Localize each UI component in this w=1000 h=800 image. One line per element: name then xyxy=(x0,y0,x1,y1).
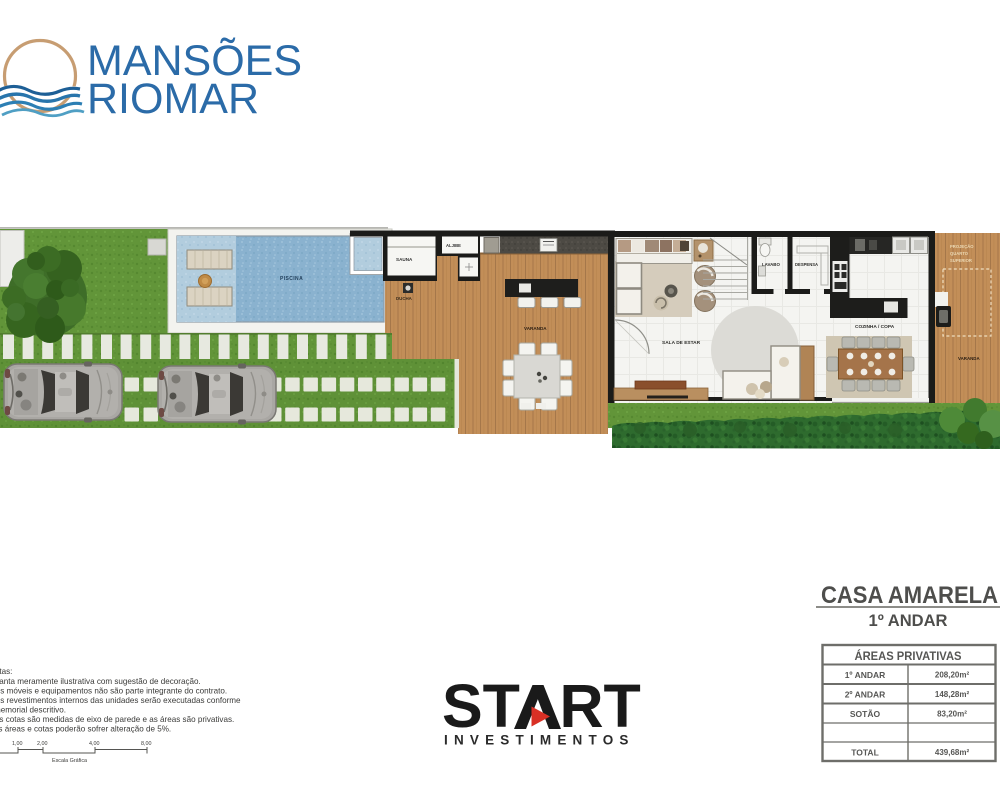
svg-text:1,00: 1,00 xyxy=(12,741,23,747)
svg-text:PISCINA: PISCINA xyxy=(280,276,303,282)
svg-text:SOTÃO: SOTÃO xyxy=(850,709,881,719)
svg-text:As áreas e cotas poderão sofre: As áreas e cotas poderão sofrer alteraçã… xyxy=(0,725,171,734)
svg-text:208,20m²: 208,20m² xyxy=(935,671,970,680)
svg-text:Os revestimentos internos das: Os revestimentos internos das unidades s… xyxy=(0,696,241,705)
svg-text:As cotas são medidas de eixo d: As cotas são medidas de eixo de parede e… xyxy=(0,715,234,724)
svg-text:83,20m²: 83,20m² xyxy=(937,710,967,719)
svg-text:Planta meramente ilustrativa c: Planta meramente ilustrativa com sugestã… xyxy=(0,677,201,686)
svg-text:ÁREAS PRIVATIVAS: ÁREAS PRIVATIVAS xyxy=(855,650,962,663)
svg-text:VARANDA: VARANDA xyxy=(524,326,547,331)
svg-text:LAVABO: LAVABO xyxy=(762,262,780,267)
svg-text:RIOMAR: RIOMAR xyxy=(87,75,259,123)
svg-text:4,00: 4,00 xyxy=(89,741,100,747)
svg-text:COZINHA / COPA: COZINHA / COPA xyxy=(855,324,895,330)
svg-text:DESPENSA: DESPENSA xyxy=(795,262,818,267)
svg-text:148,28m²: 148,28m² xyxy=(935,690,970,699)
svg-text:QUARTO: QUARTO xyxy=(950,251,969,256)
svg-text:TOTAL: TOTAL xyxy=(851,748,879,758)
svg-text:2,00: 2,00 xyxy=(37,741,48,747)
svg-text:8,00: 8,00 xyxy=(141,741,152,747)
svg-text:INVESTIMENTOS: INVESTIMENTOS xyxy=(444,733,635,748)
svg-text:memorial descritivo.: memorial descritivo. xyxy=(0,706,66,715)
svg-text:Escala Gráfica: Escala Gráfica xyxy=(52,758,87,764)
svg-text:SALA DE ESTAR: SALA DE ESTAR xyxy=(662,340,701,346)
svg-text:CASA AMARELA: CASA AMARELA xyxy=(821,582,998,609)
svg-text:SUPERIOR: SUPERIOR xyxy=(950,258,972,263)
svg-text:PROJEÇÃO: PROJEÇÃO xyxy=(950,244,974,249)
svg-text:SAUNA: SAUNA xyxy=(396,257,413,262)
svg-text:2º ANDAR: 2º ANDAR xyxy=(845,690,886,700)
svg-text:ALJIBE: ALJIBE xyxy=(446,243,461,248)
svg-text:VARANDA: VARANDA xyxy=(958,356,980,361)
svg-text:439,68m²: 439,68m² xyxy=(935,748,970,757)
svg-text:Notas:: Notas: xyxy=(0,667,12,676)
svg-text:Os móveis e equipamentos não s: Os móveis e equipamentos não são parte i… xyxy=(0,687,227,696)
svg-text:1º ANDAR: 1º ANDAR xyxy=(845,670,886,680)
svg-text:1º ANDAR: 1º ANDAR xyxy=(869,611,948,630)
svg-text:DUCHA: DUCHA xyxy=(396,296,413,301)
